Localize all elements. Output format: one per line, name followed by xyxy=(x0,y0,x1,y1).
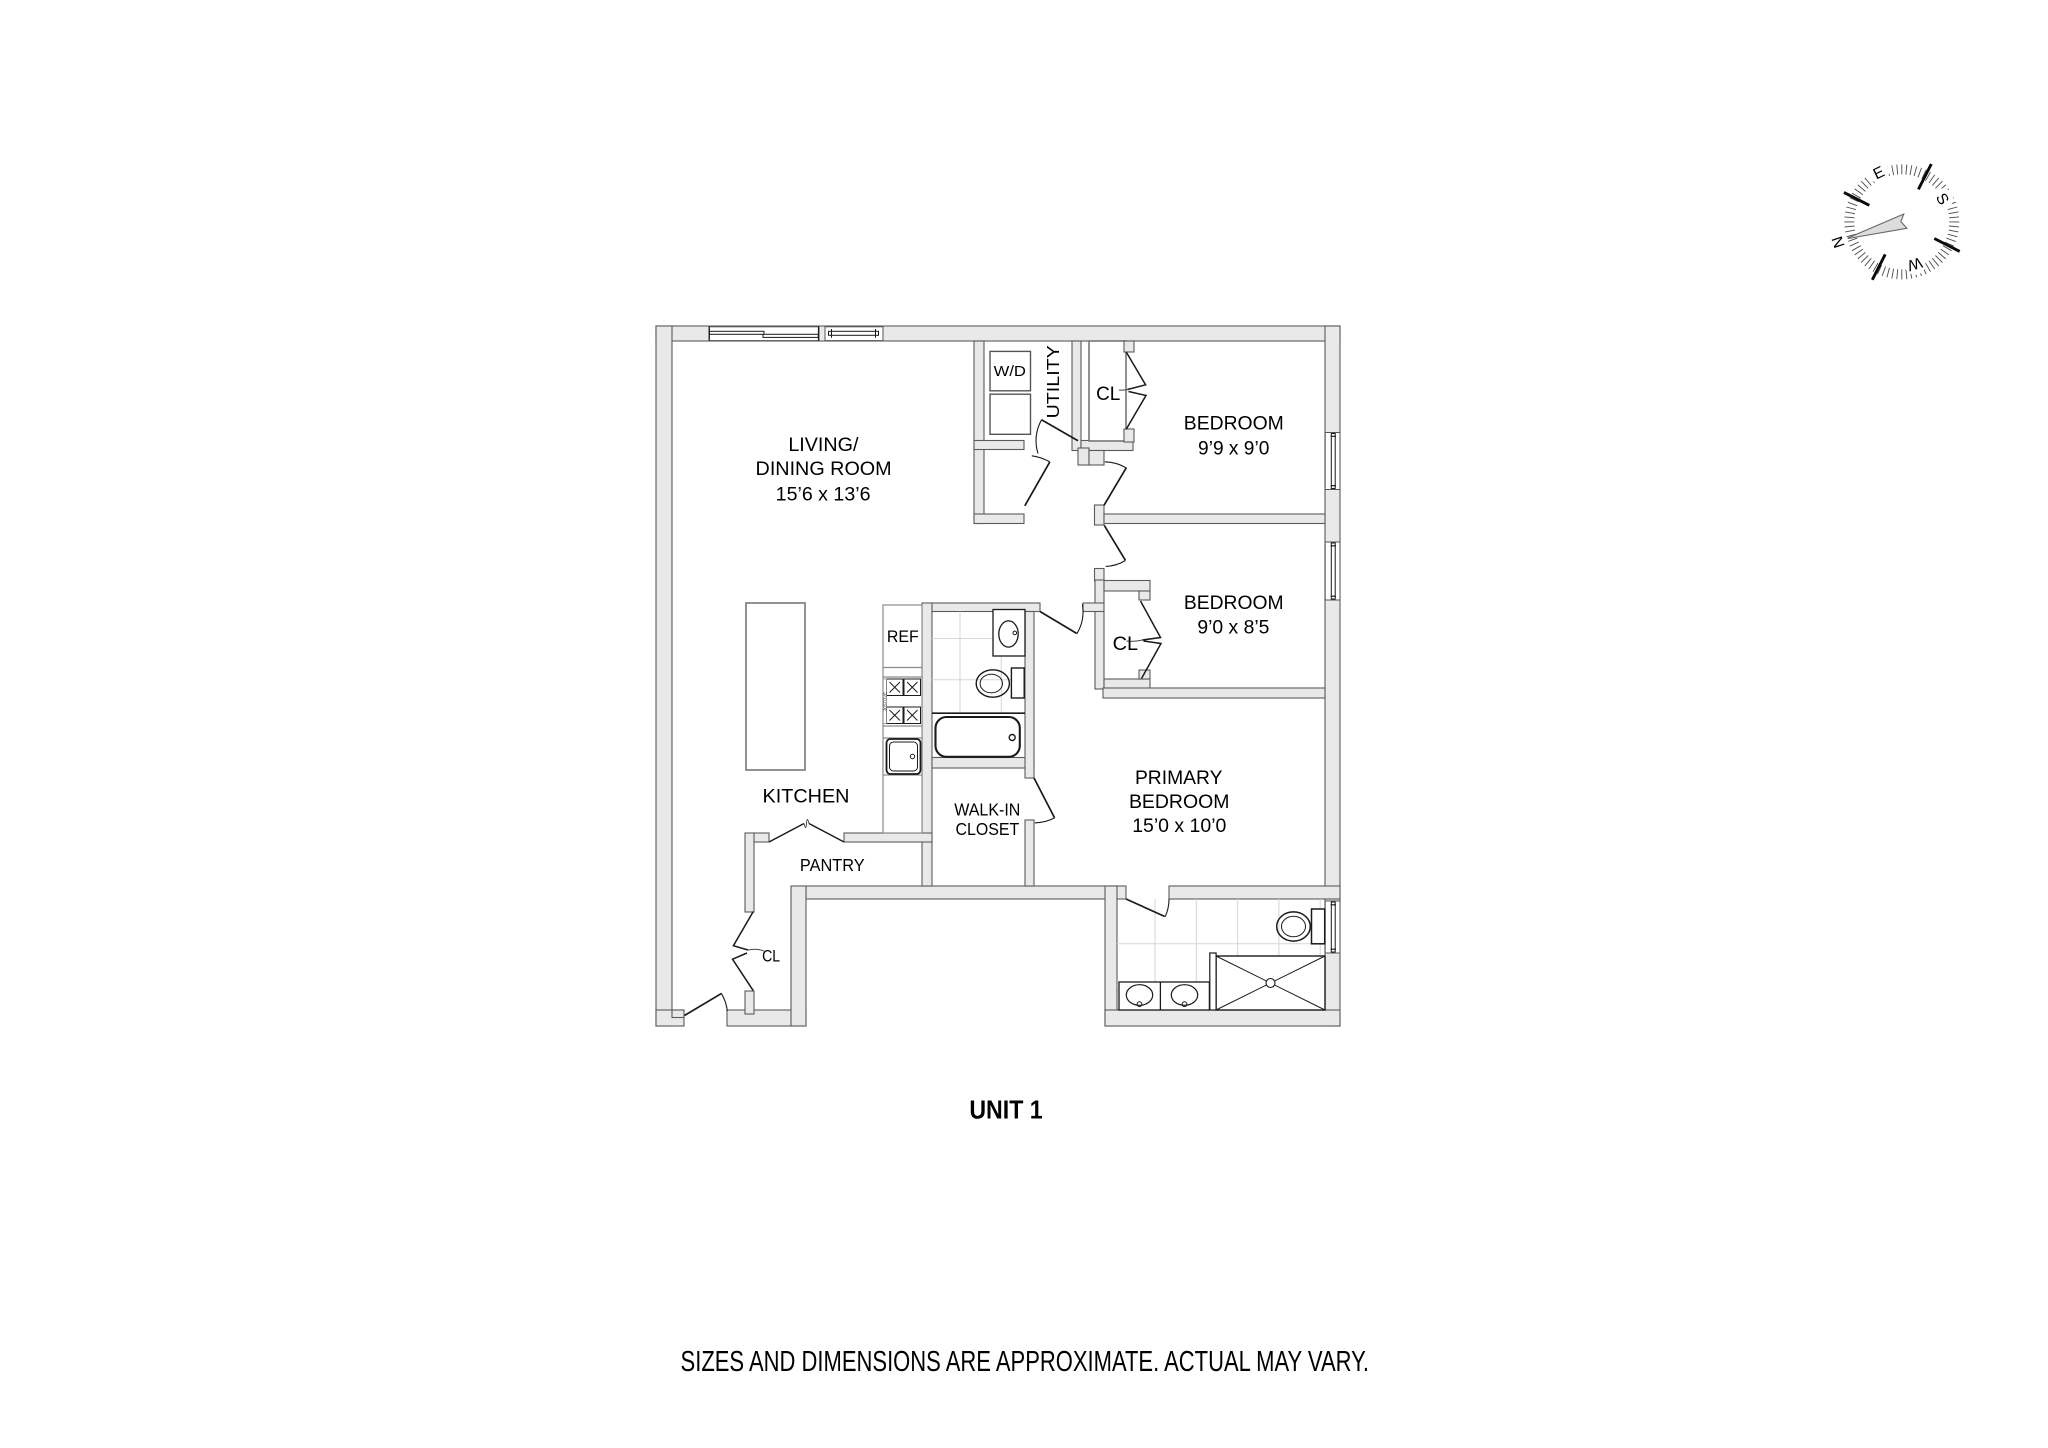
svg-text:9’9 x 9’0: 9’9 x 9’0 xyxy=(1198,437,1269,459)
svg-text:BEDROOM: BEDROOM xyxy=(1184,592,1284,614)
svg-text:WALK-IN: WALK-IN xyxy=(954,800,1020,820)
svg-text:BEDROOM: BEDROOM xyxy=(1184,412,1284,434)
svg-text:BEDROOM: BEDROOM xyxy=(1129,791,1230,813)
svg-text:KITCHEN: KITCHEN xyxy=(763,785,850,807)
svg-text:PRIMARY: PRIMARY xyxy=(1135,767,1223,789)
svg-text:CL: CL xyxy=(762,947,780,966)
svg-text:UTILITY: UTILITY xyxy=(1043,345,1063,419)
svg-text:UNIT 1: UNIT 1 xyxy=(969,1094,1042,1124)
svg-text:30STOVE: 30STOVE xyxy=(882,692,887,711)
svg-text:PANTRY: PANTRY xyxy=(800,855,865,875)
svg-text:CL: CL xyxy=(1113,634,1138,655)
svg-text:9’0 x 8’5: 9’0 x 8’5 xyxy=(1197,617,1269,639)
svg-text:DINING ROOM: DINING ROOM xyxy=(756,458,892,480)
svg-text:LIVING/: LIVING/ xyxy=(788,434,859,456)
svg-text:SIZES AND DIMENSIONS ARE APPRO: SIZES AND DIMENSIONS ARE APPROXIMATE. AC… xyxy=(681,1346,1370,1378)
svg-text:CLOSET: CLOSET xyxy=(956,819,1020,839)
svg-text:15’6 x 13’6: 15’6 x 13’6 xyxy=(776,484,871,506)
svg-text:CL: CL xyxy=(1096,384,1120,405)
svg-text:15’0 x 10’0: 15’0 x 10’0 xyxy=(1132,815,1226,837)
svg-text:W/D: W/D xyxy=(994,363,1026,380)
svg-text:REF: REF xyxy=(887,627,919,646)
